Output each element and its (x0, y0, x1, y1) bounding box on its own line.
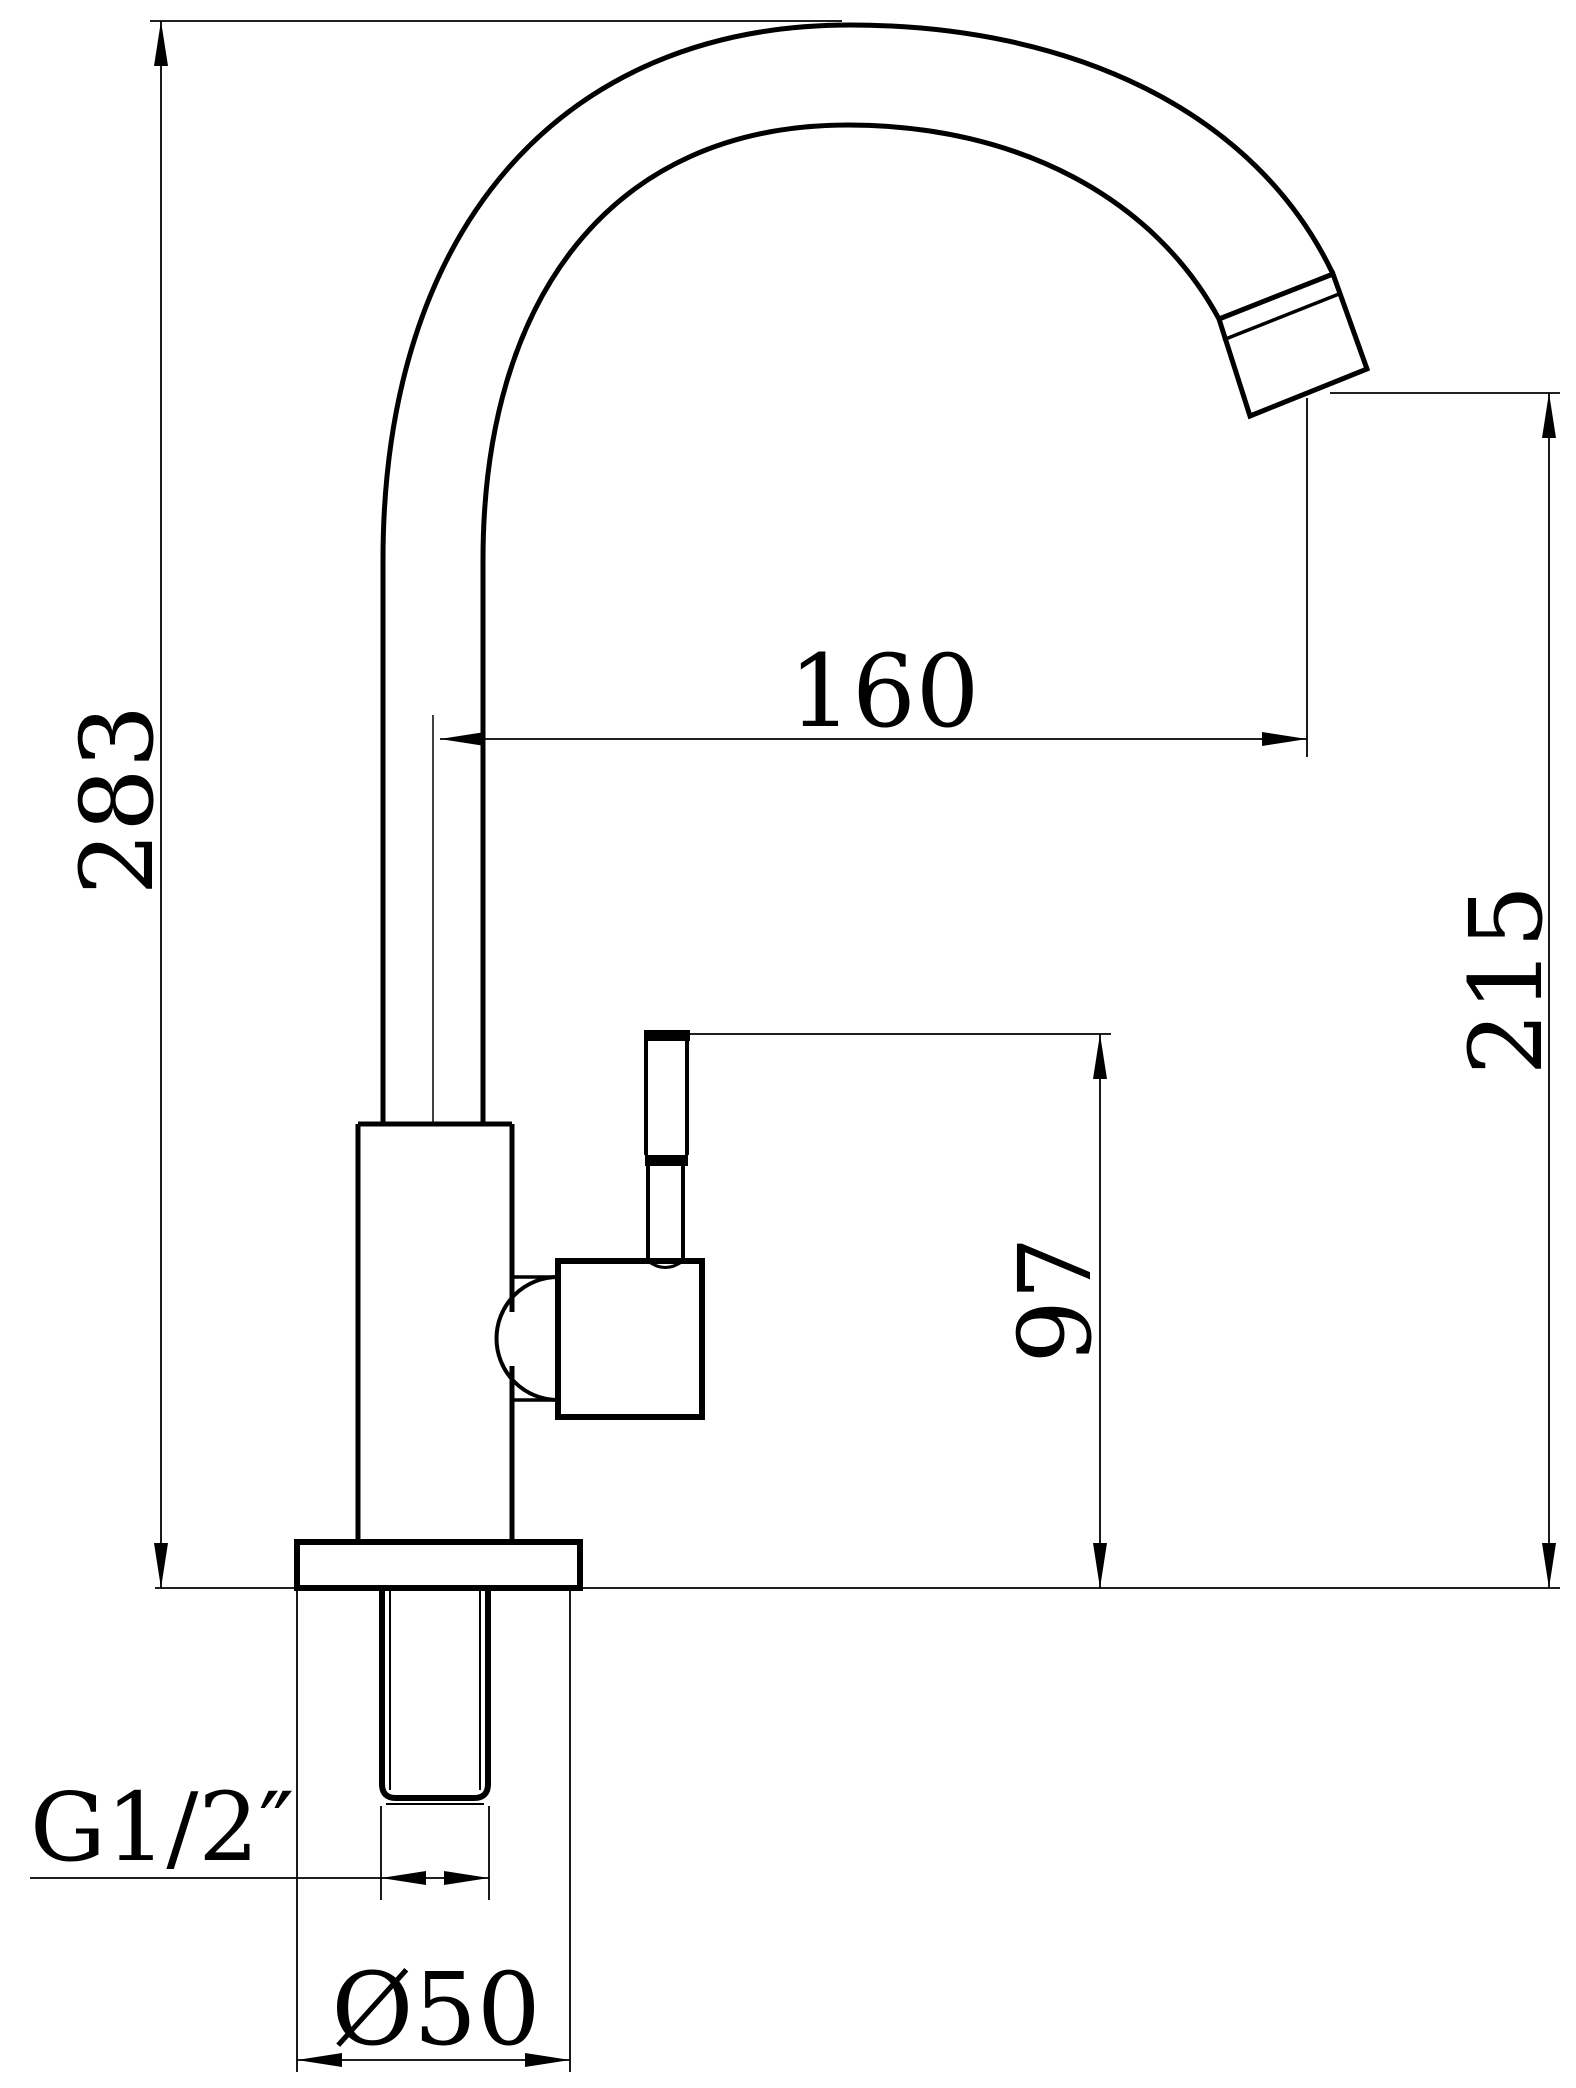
arrowhead-right (444, 1871, 489, 1885)
dim-text-d50: Ø50 (331, 1951, 540, 2068)
dimension-handle-height: 97 (690, 1034, 1114, 1588)
arrowhead-left (381, 1871, 426, 1885)
spout-outer-profile (383, 25, 1333, 1126)
nozzle-outline (1219, 274, 1367, 416)
arrowhead-right (1262, 732, 1307, 746)
dimension-base-diameter: Ø50 (297, 1590, 570, 2072)
arrowhead-up (1542, 393, 1556, 438)
dim-text-160: 160 (789, 633, 980, 750)
dimension-outlet-height: 215 (1330, 393, 1565, 1588)
arrowhead-down (1093, 1543, 1107, 1588)
base-flange (297, 1542, 580, 1588)
shank-bottom-cap (382, 1784, 488, 1798)
valve-joint-arc (497, 1277, 559, 1400)
arrowhead-up (1093, 1034, 1107, 1079)
handle-grip-joint-bar (645, 1155, 688, 1166)
handle-housing (558, 1261, 702, 1417)
handle-grip-top-cap (644, 1030, 690, 1041)
nozzle-collar-line (1223, 294, 1339, 340)
drawing-page: 283 160 215 97 G1/2″ (0, 0, 1576, 2088)
spout-inner-profile (483, 125, 1219, 1126)
dimension-thread: G1/2″ (30, 1773, 489, 1900)
dimension-spout-reach: 160 (440, 398, 1307, 757)
arrowhead-left (440, 732, 485, 746)
technical-drawing: 283 160 215 97 G1/2″ (0, 0, 1576, 2088)
dim-text-97: 97 (997, 1236, 1114, 1363)
arrowhead-up (154, 21, 168, 66)
dim-text-283: 283 (59, 705, 176, 896)
arrowhead-down (1542, 1543, 1556, 1588)
arrowhead-down (154, 1543, 168, 1588)
dim-text-215: 215 (1448, 885, 1565, 1076)
dim-text-g12: G1/2″ (30, 1773, 294, 1883)
faucet-outline (297, 25, 1367, 1804)
